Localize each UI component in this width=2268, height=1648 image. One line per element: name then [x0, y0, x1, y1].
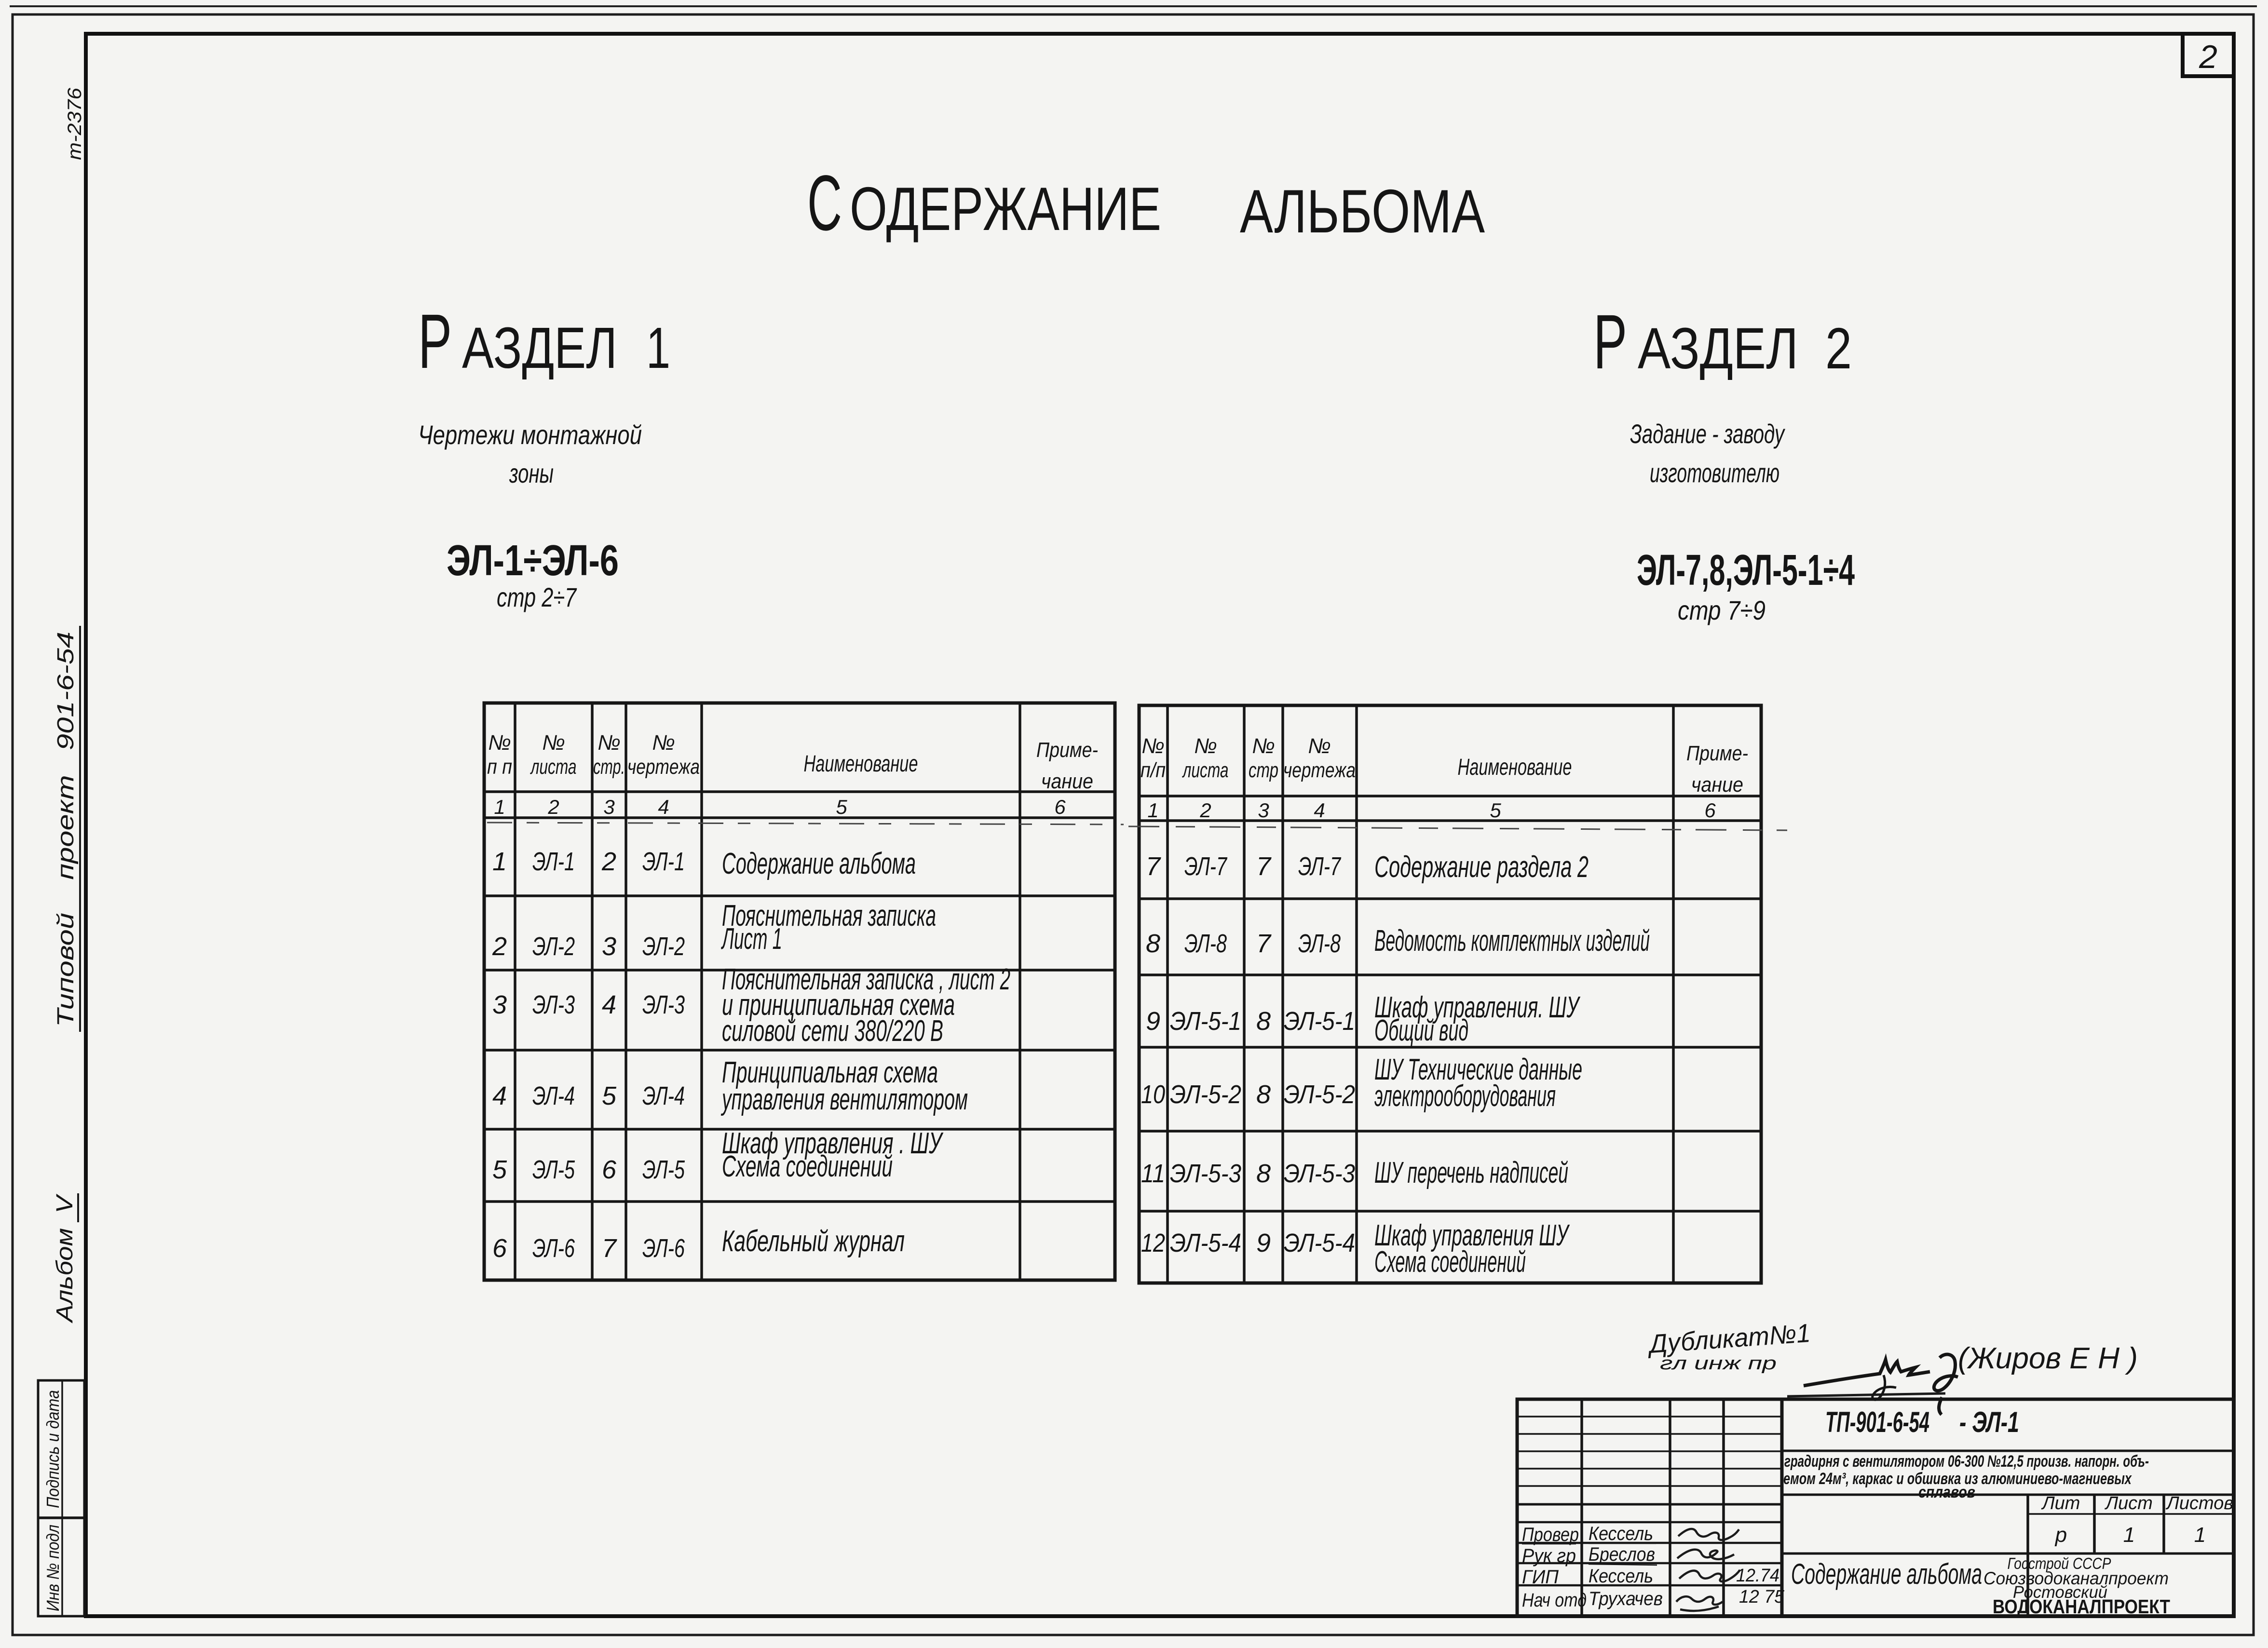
svg-text:Подпись и дата: Подпись и дата [43, 1390, 63, 1508]
svg-text:ВОДОКАНАЛПРОЕКТ: ВОДОКАНАЛПРОЕКТ [1993, 1595, 2170, 1618]
svg-text:12: 12 [1141, 1229, 1165, 1257]
svg-text:2: 2 [601, 847, 616, 876]
svg-text:Лист: Лист [2104, 1493, 2153, 1513]
svg-text:ЭЛ-5-1: ЭЛ-5-1 [1170, 1007, 1241, 1036]
svg-text:ЭЛ-5: ЭЛ-5 [642, 1155, 685, 1184]
svg-text:2: 2 [492, 932, 507, 961]
svg-text:ЭЛ-5-1: ЭЛ-5-1 [1284, 1007, 1355, 1036]
svg-text:3: 3 [603, 796, 614, 818]
svg-text:градирня с вентилятором 06-300: градирня с вентилятором 06-300 №12,5 про… [1784, 1452, 2149, 1471]
svg-text:ЭЛ-6: ЭЛ-6 [642, 1234, 685, 1263]
svg-text:1: 1 [494, 796, 505, 818]
svg-text:3: 3 [1258, 799, 1269, 822]
svg-text:7: 7 [1146, 852, 1161, 881]
svg-text:12 75: 12 75 [1739, 1587, 1785, 1607]
svg-text:ЭЛ-7: ЭЛ-7 [1184, 852, 1227, 881]
svg-text:9: 9 [1146, 1007, 1160, 1036]
svg-text:3: 3 [602, 932, 616, 961]
svg-text:АЛЬБОМА: АЛЬБОМА [1240, 177, 1485, 245]
svg-text:ЭЛ-8: ЭЛ-8 [1298, 929, 1341, 958]
svg-text:5: 5 [492, 1155, 507, 1184]
svg-text:ШУ перечень надписей: ШУ перечень надписей [1374, 1156, 1568, 1189]
svg-text:Схема соединений: Схема соединений [1374, 1245, 1526, 1279]
svg-text:Лит: Лит [2041, 1493, 2080, 1513]
svg-text:6: 6 [1054, 796, 1066, 818]
svg-text:№: № [652, 731, 675, 755]
svg-text:стр 2÷7: стр 2÷7 [497, 582, 577, 612]
svg-text:5: 5 [602, 1081, 617, 1110]
svg-text:ГИП: ГИП [1522, 1567, 1559, 1588]
svg-text:Рук гр: Рук гр [1522, 1545, 1576, 1567]
svg-text:Лист 1: Лист 1 [721, 922, 782, 956]
svg-text:Нач отд: Нач отд [1522, 1590, 1587, 1611]
svg-text:Содержание альбома: Содержание альбома [1791, 1558, 1982, 1590]
svg-text:Кабельный журнал: Кабельный журнал [722, 1225, 905, 1258]
svg-text:Альбом V: Альбом V [52, 1193, 78, 1324]
svg-text:10: 10 [1141, 1080, 1165, 1109]
svg-text:р: р [2054, 1523, 2067, 1547]
svg-text:листа: листа [1182, 758, 1228, 782]
svg-text:Р: Р [1593, 298, 1627, 385]
svg-text:чертежа: чертежа [627, 755, 700, 779]
svg-text:силовой сети 380/220 В: силовой сети 380/220 В [722, 1014, 943, 1048]
svg-text:6: 6 [492, 1234, 507, 1263]
svg-text:ЭЛ-1: ЭЛ-1 [642, 847, 685, 876]
svg-text:- ЭЛ-1: - ЭЛ-1 [1959, 1406, 2019, 1438]
svg-text:7: 7 [1256, 929, 1272, 958]
svg-text:Приме-: Приме- [1036, 738, 1098, 762]
svg-text:Чертежи монтажной: Чертежи монтажной [418, 419, 642, 450]
svg-text:1: 1 [646, 315, 670, 380]
svg-text:8: 8 [1256, 1080, 1271, 1109]
svg-text:Листов: Листов [2165, 1493, 2233, 1513]
svg-text:Кессель: Кессель [1589, 1523, 1653, 1544]
svg-text:8: 8 [1146, 929, 1160, 958]
svg-text:1: 1 [2123, 1523, 2135, 1547]
svg-text:4: 4 [658, 796, 669, 818]
svg-text:ЭЛ-5-3: ЭЛ-5-3 [1170, 1159, 1241, 1188]
svg-text:Бреслов: Бреслов [1589, 1544, 1655, 1565]
svg-text:чертежа: чертежа [1283, 758, 1356, 782]
svg-text:ЭЛ-4: ЭЛ-4 [642, 1081, 685, 1110]
svg-text:ЭЛ-3: ЭЛ-3 [642, 990, 685, 1019]
svg-text:№: № [1252, 734, 1275, 758]
svg-text:т-2376: т-2376 [64, 87, 85, 160]
svg-text:5: 5 [836, 796, 847, 818]
svg-text:п п: п п [487, 755, 512, 779]
svg-text:№: № [542, 731, 565, 755]
svg-text:изготовителю: изготовителю [1650, 458, 1779, 488]
svg-text:4: 4 [492, 1081, 507, 1110]
svg-text:ЭЛ-2: ЭЛ-2 [532, 932, 575, 961]
svg-text:8: 8 [1256, 1007, 1271, 1036]
svg-text:ЭЛ-3: ЭЛ-3 [532, 990, 575, 1019]
svg-text:№: № [1308, 734, 1331, 758]
svg-text:АЗДЕЛ: АЗДЕЛ [1638, 315, 1798, 381]
svg-text:4: 4 [1314, 799, 1325, 822]
svg-text:Содержание альбома: Содержание альбома [722, 847, 916, 880]
svg-text:п/п: п/п [1141, 758, 1166, 782]
svg-text:чание: чание [1041, 770, 1093, 793]
svg-text:Инв № подл: Инв № подл [43, 1525, 63, 1611]
svg-text:ЭЛ-8: ЭЛ-8 [1184, 929, 1227, 958]
svg-text:управления вентилятором: управления вентилятором [720, 1083, 968, 1116]
svg-text:№: № [598, 731, 621, 755]
svg-text:11: 11 [1141, 1159, 1165, 1188]
svg-text:ТП-901-6-54: ТП-901-6-54 [1825, 1406, 1929, 1438]
svg-text:сплавов: сплавов [1918, 1483, 1975, 1501]
svg-text:стр.: стр. [593, 755, 625, 779]
svg-text:ЭЛ-1: ЭЛ-1 [532, 847, 575, 876]
svg-text:ЭЛ-1÷ЭЛ-6: ЭЛ-1÷ЭЛ-6 [447, 537, 619, 585]
svg-text:9: 9 [1256, 1229, 1271, 1257]
svg-text:6: 6 [1704, 799, 1716, 822]
svg-text:2: 2 [1199, 799, 1211, 822]
svg-text:№: № [1194, 734, 1217, 758]
svg-text:ОДЕРЖАНИЕ: ОДЕРЖАНИЕ [850, 175, 1161, 243]
svg-text:ЭЛ-5-2: ЭЛ-5-2 [1170, 1080, 1241, 1109]
svg-text:8: 8 [1256, 1159, 1271, 1188]
svg-text:стр 7÷9: стр 7÷9 [1678, 595, 1766, 625]
svg-text:Схема соединений: Схема соединений [722, 1150, 893, 1183]
svg-text:Задание - заводу: Задание - заводу [1630, 419, 1785, 449]
svg-text:Общий вид: Общий вид [1374, 1014, 1468, 1047]
svg-text:АЗДЕЛ: АЗДЕЛ [462, 315, 617, 380]
svg-text:ЭЛ-4: ЭЛ-4 [532, 1081, 575, 1110]
svg-text:Ведомость комплектных изделий: Ведомость комплектных изделий [1374, 924, 1650, 958]
svg-text:ЭЛ-2: ЭЛ-2 [642, 932, 685, 961]
svg-text:12.74: 12.74 [1736, 1566, 1779, 1586]
svg-text:2: 2 [2199, 39, 2217, 75]
svg-text:2: 2 [547, 796, 559, 818]
svg-text:6: 6 [602, 1155, 617, 1184]
svg-text:Содержание раздела 2: Содержание раздела 2 [1374, 851, 1589, 884]
svg-text:ЭЛ-7: ЭЛ-7 [1298, 852, 1341, 881]
svg-text:ЭЛ-5-4: ЭЛ-5-4 [1284, 1229, 1355, 1257]
svg-text:1: 1 [1147, 799, 1158, 822]
svg-text:ЭЛ-7,8,ЭЛ-5-1÷4: ЭЛ-7,8,ЭЛ-5-1÷4 [1637, 546, 1855, 594]
svg-text:1: 1 [2194, 1523, 2206, 1547]
svg-text:Наименование: Наименование [804, 751, 918, 777]
svg-text:стр: стр [1249, 758, 1278, 782]
svg-text:3: 3 [492, 990, 507, 1019]
svg-text:ЭЛ-5: ЭЛ-5 [532, 1155, 575, 1184]
svg-text:электрооборудования: электрооборудования [1374, 1080, 1556, 1113]
svg-text:№: № [1141, 734, 1165, 758]
svg-text:листа: листа [530, 755, 576, 779]
svg-text:С: С [807, 159, 842, 247]
svg-text:Наименование: Наименование [1458, 755, 1572, 780]
svg-text:Р: Р [418, 298, 452, 384]
svg-text:Трухачев: Трухачев [1589, 1588, 1663, 1609]
svg-text:ЭЛ-5-3: ЭЛ-5-3 [1284, 1159, 1355, 1188]
svg-text:7: 7 [1256, 852, 1272, 881]
svg-text:№: № [488, 731, 511, 755]
svg-text:Типовой проект 901-6-54: Типовой проект 901-6-54 [53, 632, 79, 1027]
svg-text:гл инж пр: гл инж пр [1660, 1353, 1777, 1374]
svg-text:Провер: Провер [1522, 1524, 1579, 1545]
svg-text:(Жиров Е Н ): (Жиров Е Н ) [1958, 1342, 2138, 1375]
svg-text:ЭЛ-5-4: ЭЛ-5-4 [1170, 1229, 1241, 1257]
svg-text:ЭЛ-6: ЭЛ-6 [532, 1234, 575, 1263]
svg-text:ЭЛ-5-2: ЭЛ-5-2 [1284, 1080, 1355, 1109]
svg-text:4: 4 [602, 990, 616, 1019]
svg-text:чание: чание [1691, 773, 1743, 797]
svg-text:7: 7 [602, 1234, 617, 1263]
svg-text:зоны: зоны [509, 458, 554, 488]
svg-text:2: 2 [1825, 315, 1852, 381]
svg-text:1: 1 [492, 847, 507, 876]
svg-text:5: 5 [1490, 799, 1501, 822]
svg-text:Приме-: Приме- [1686, 742, 1748, 765]
svg-text:Кессель: Кессель [1589, 1566, 1653, 1587]
